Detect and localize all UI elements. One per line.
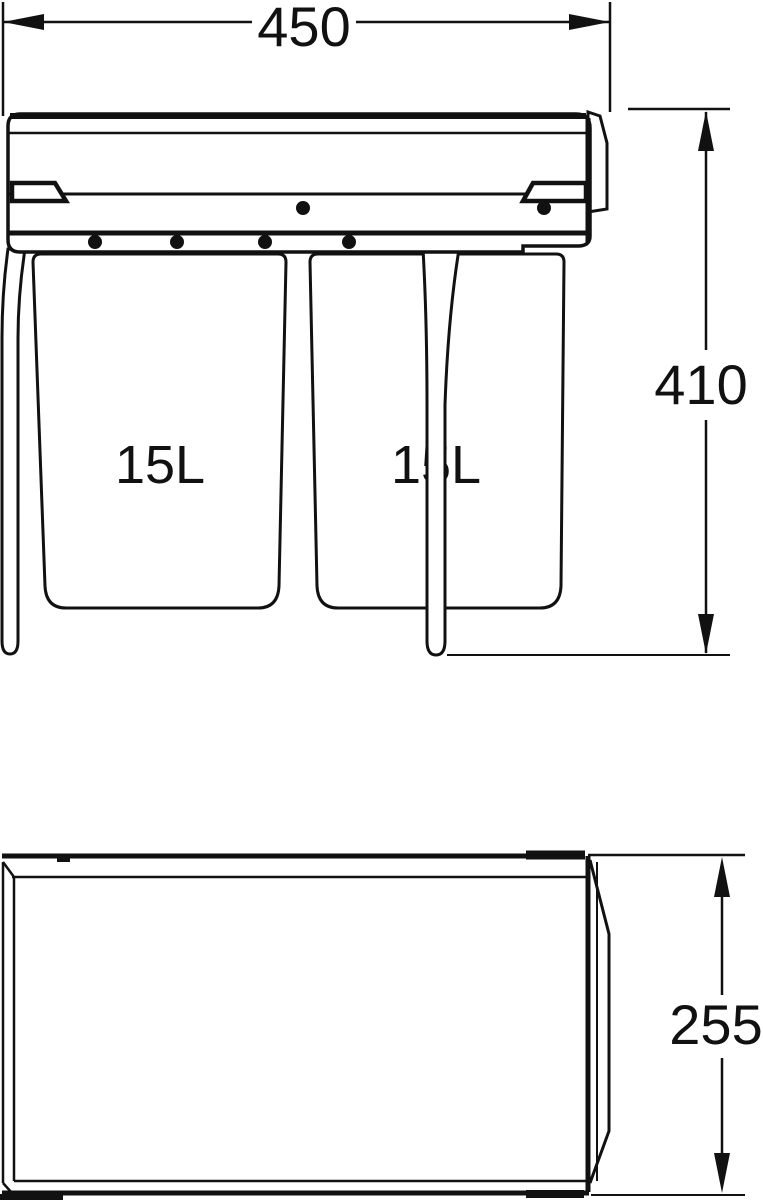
arrowhead-down-icon bbox=[714, 1153, 730, 1193]
rivet-dot bbox=[88, 235, 102, 249]
cabinet-body bbox=[0, 855, 589, 1197]
arrowhead-right-icon bbox=[569, 14, 610, 30]
rivet-dot bbox=[342, 235, 356, 249]
left-clip-bracket bbox=[12, 183, 66, 201]
top-left-notch bbox=[57, 857, 70, 862]
front-view: 450 15L 15L bbox=[2, 0, 748, 655]
arrowhead-left-icon bbox=[3, 14, 44, 30]
bins: 15L 15L bbox=[33, 254, 564, 608]
waste-bin-technical-drawing: 450 15L 15L bbox=[0, 0, 763, 1200]
left-leg bbox=[2, 249, 25, 654]
dimension-width: 450 bbox=[3, 0, 610, 116]
depth-dimension-label: 255 bbox=[669, 993, 762, 1056]
left-bin-outline bbox=[33, 254, 286, 608]
door-outer-face bbox=[590, 860, 609, 1183]
rivet-dot bbox=[258, 235, 272, 249]
arrowhead-up-icon bbox=[698, 111, 714, 151]
rivet-dot bbox=[170, 235, 184, 249]
rivet-dot bbox=[296, 201, 310, 215]
height-dimension-label: 410 bbox=[654, 353, 747, 416]
technical-drawing-page: 450 15L 15L bbox=[0, 0, 763, 1200]
left-bin-capacity-label: 15L bbox=[115, 435, 205, 495]
arrowhead-down-icon bbox=[698, 614, 714, 654]
dimension-depth: 255 bbox=[588, 855, 763, 1195]
right-clip-bracket bbox=[523, 183, 586, 201]
rivet-dot bbox=[537, 201, 551, 215]
arrowhead-up-icon bbox=[714, 857, 730, 897]
top-left-bevel bbox=[3, 862, 14, 877]
front-panel-assembly bbox=[8, 114, 590, 252]
door-panel-edge bbox=[590, 860, 609, 1183]
side-view: 255 bbox=[0, 855, 763, 1197]
width-dimension-label: 450 bbox=[257, 0, 350, 58]
